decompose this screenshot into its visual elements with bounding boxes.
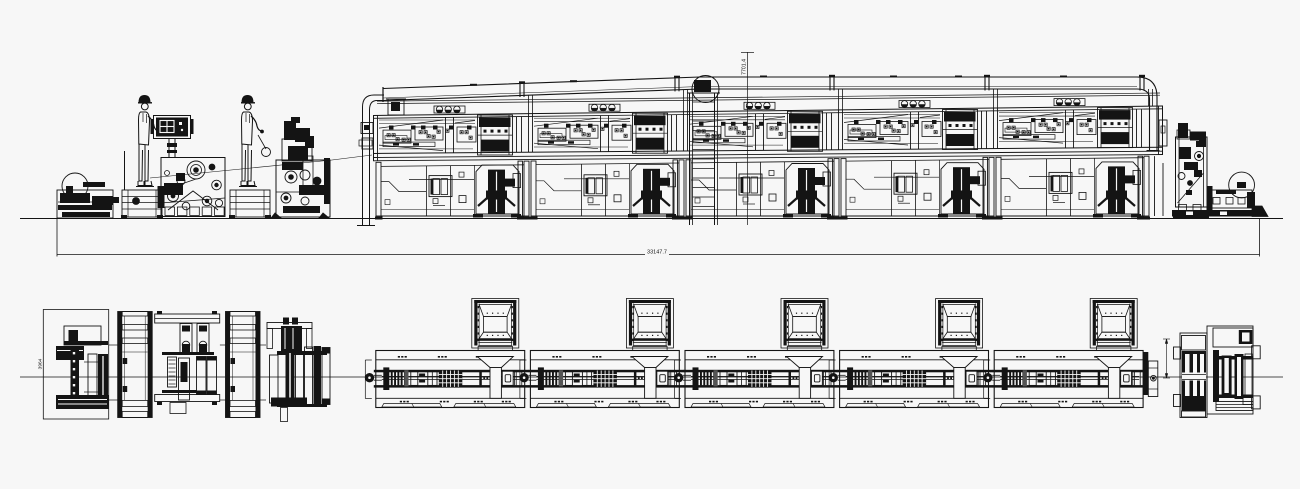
svg-text:7701.4: 7701.4 xyxy=(742,59,748,75)
svg-text:33147.7: 33147.7 xyxy=(647,250,667,256)
svg-text:3964: 3964 xyxy=(38,358,44,369)
